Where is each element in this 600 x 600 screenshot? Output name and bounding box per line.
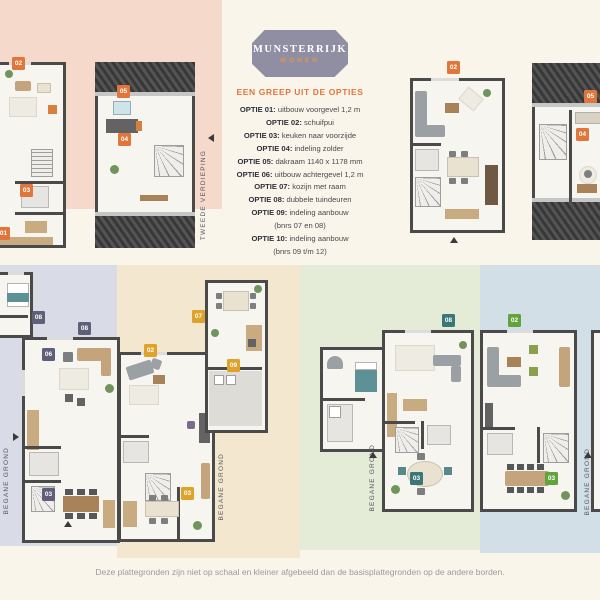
chair [449,178,456,184]
window [22,370,25,396]
pouf [65,394,73,402]
roof-edge [532,103,600,107]
washer [214,375,224,385]
option-item: OPTIE 08: dubbele tuindeuren [210,194,390,207]
coffee-table [507,357,521,367]
cabinet [15,81,31,91]
entrance-marker-icon [450,237,458,243]
option-badge: 03 [20,184,33,197]
rug [59,368,89,390]
option-badge: 02 [144,344,157,357]
winder-stairs [154,145,184,177]
chair [461,151,468,157]
roof-edge [532,198,600,202]
chair [77,489,85,495]
floorplan-second-floor-right [410,78,505,233]
option-badge: 07 [192,310,205,323]
kitchen-island [403,399,427,411]
option-badge: 02 [447,61,460,74]
dining-table [223,291,249,311]
chair [398,467,406,475]
option-badge: 08 [442,314,455,327]
kitchen-island [123,501,137,527]
interior-wall [25,480,61,483]
window [8,272,24,275]
plant [105,384,114,393]
option-badge: 03 [410,472,423,485]
winder-stairs [395,427,419,453]
chair [417,453,425,460]
chair [537,464,544,470]
interior-wall [25,446,61,449]
cabinet [559,347,570,387]
bathroom [427,425,451,445]
armchair [63,352,73,362]
bathroom [123,441,149,463]
interior-wall [121,435,149,438]
entrance-marker-icon [64,521,72,527]
chair [149,495,156,501]
bathroom [487,433,513,455]
option-item: OPTIE 10: indeling aanbouw [210,233,390,246]
plant [459,341,467,349]
appliance [248,339,256,347]
floorplan-ground-green-wing [320,347,385,452]
desk-chair [584,170,592,178]
accent-chair [529,345,538,354]
chair [89,489,97,495]
sofa [101,348,111,376]
option-badge: 06 [42,348,55,361]
interior-wall [421,421,424,449]
sofa [433,355,461,366]
side-table [37,83,51,93]
corner-sofa [487,375,521,387]
pillow [136,121,142,131]
lounge-chair [327,356,343,369]
sideboard [140,195,168,201]
option-item: OPTIE 07: kozijn met raam [210,181,390,194]
chair [517,487,524,493]
plant [211,329,219,337]
bathroom [415,149,439,171]
dining-table [505,471,549,486]
chair [537,487,544,493]
option-badge: 08 [78,322,91,335]
chair [507,464,514,470]
option-item: OPTIE 04: indeling zolder [210,143,390,156]
logo-subtitle: WONEN [280,57,320,64]
dining-table [447,157,479,177]
floorplan-ground-cream [118,352,215,542]
option-badge: 02 [12,57,25,70]
shower [329,406,341,418]
interior-wall [15,212,63,215]
chair [65,513,73,519]
logo-badge: MUNSTERRIJK WONEN [252,30,348,77]
chair [65,489,73,495]
tall-cabinet [485,165,498,205]
option-badge: 02 [508,314,521,327]
option-item: OPTIE 01: uitbouw voorgevel 1,2 m [210,104,390,117]
chair [444,467,452,475]
option-badge: 01 [0,227,10,240]
chair [77,513,85,519]
entrance-marker-icon [584,452,592,458]
option-note: (bnrs 07 en 08) [210,220,390,233]
chair [527,464,534,470]
chair [161,518,168,524]
option-item: OPTIE 09: indeling aanbouw [210,207,390,220]
sideboard [201,463,210,499]
option-badge: 04 [118,133,131,146]
floorplan-ground-blue [480,330,577,512]
rug [395,345,435,371]
chair [517,464,524,470]
dining-table [145,501,179,517]
interior-wall [413,143,441,146]
entrance-marker-icon [13,433,19,441]
chair [449,151,456,157]
option-item: OPTIE 06: uitbouw achtergevel 1,2 m [210,169,390,182]
chair [216,303,222,309]
sofa [415,125,445,137]
rug [9,97,37,117]
chair [89,513,97,519]
chair [527,487,534,493]
accent-chair [529,367,538,376]
option-item: OPTIE 02: schuifpui [210,117,390,130]
interior-wall [0,315,28,318]
rug [129,385,159,405]
bathroom [29,452,59,476]
coffee-table [153,375,165,384]
bed [106,119,138,133]
entrance-marker-icon [208,134,214,142]
skylight [113,101,131,115]
options-panel: EEN GREEP UIT DE OPTIES OPTIE 01: uitbou… [210,87,390,259]
plant [193,521,202,530]
kitchen-counter [445,209,479,219]
floorplan-ground-partial-left [0,272,33,338]
kitchen-island [25,221,47,233]
floorplan-ground-partial-right [591,330,600,512]
plant [391,485,400,494]
interior-wall [569,110,572,202]
floor-label-tweede-verdieping: TWEEDE VERDIEPING [200,150,207,240]
option-badge: 03 [181,487,194,500]
chair [507,487,514,493]
logo-title: MUNSTERRIJK [253,44,347,55]
dining-table [63,496,99,512]
interior-wall [385,421,415,424]
option-badge: 05 [584,90,597,103]
bed-throw [7,293,29,302]
chair [250,303,256,309]
window [431,78,459,81]
chair [461,178,468,184]
window [507,330,533,333]
option-badge: 05 [117,85,130,98]
floorplan-ground-green [382,330,474,512]
bed-pillow [355,362,377,370]
option-note: (bnrs 09 t/m 12) [210,246,390,259]
coffee-table [445,103,459,113]
chair [149,518,156,524]
roof-hatch [95,62,195,92]
window [47,337,73,340]
kitchen-island [103,500,115,528]
window [405,330,431,333]
chair [250,293,256,299]
armchair [48,105,57,114]
winder-stairs [415,177,441,207]
roof-edge [95,212,195,216]
plant [561,491,570,500]
stairs [31,149,53,177]
chair [161,495,168,501]
kitchen-counter [246,325,262,351]
washer [226,375,236,385]
desk [577,184,597,193]
floorplan-ground-lavender [22,337,120,543]
winder-stairs [543,433,569,463]
plant [110,165,119,174]
chair [216,293,222,299]
floorplan-attic-left [95,62,195,248]
interior-wall [323,398,365,401]
chair [417,488,425,495]
sofa [451,366,461,382]
desk-chair [187,421,195,429]
option-item: OPTIE 03: keuken naar voorzijde [210,130,390,143]
entrance-marker-icon [369,452,377,458]
option-badge: 08 [32,311,45,324]
lounge-cushion [458,86,484,111]
plant [483,89,491,97]
options-heading: EEN GREEP UIT DE OPTIES [210,87,390,97]
option-badge: 04 [576,128,589,141]
winder-stairs [539,124,567,160]
option-badge: 03 [545,472,558,485]
footer-caption: Deze plattegronden zijn niet op schaal e… [0,567,600,577]
option-badge: 09 [227,359,240,372]
floor-label-begane-grond: BEGANE GROND [3,447,10,515]
option-item: OPTIE 05: dakraam 1140 x 1178 mm [210,156,390,169]
pouf [77,398,85,406]
options-poster: MUNSTERRIJK WONEN EEN GREEP UIT DE OPTIE… [0,0,600,600]
interior-wall [483,427,515,430]
roof-hatch [532,202,600,240]
tv-unit [485,403,493,429]
roof-edge [95,92,195,96]
roof-hatch [95,216,195,248]
plant [5,70,13,78]
option-badge: 03 [42,488,55,501]
wardrobe [575,112,600,124]
floor-label-begane-grond: BEGANE GROND [584,448,591,516]
floorplan-ground-annex [205,280,268,433]
floor-label-begane-grond: BEGANE GROND [218,453,225,521]
interior-wall [537,427,540,463]
kitchen-counter [27,410,39,450]
floorplan-second-floor-left [0,62,66,248]
plant [254,285,262,293]
